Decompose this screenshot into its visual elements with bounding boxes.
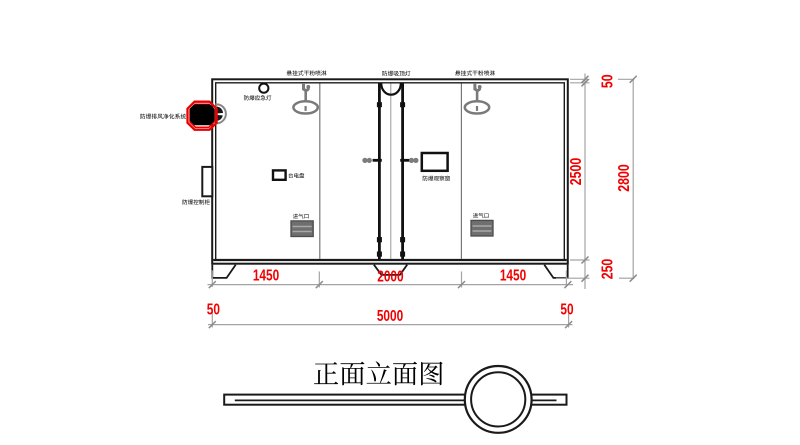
svg-text:2800: 2800: [616, 164, 634, 192]
svg-text:1450: 1450: [253, 266, 280, 284]
svg-text:50: 50: [599, 74, 617, 88]
svg-text:250: 250: [599, 259, 617, 280]
svg-text:2500: 2500: [568, 158, 586, 186]
svg-text:5000: 5000: [377, 306, 404, 324]
svg-text:1450: 1450: [500, 266, 527, 284]
svg-text:50: 50: [207, 300, 220, 318]
svg-text:50: 50: [560, 300, 573, 318]
svg-text:2000: 2000: [377, 267, 404, 285]
